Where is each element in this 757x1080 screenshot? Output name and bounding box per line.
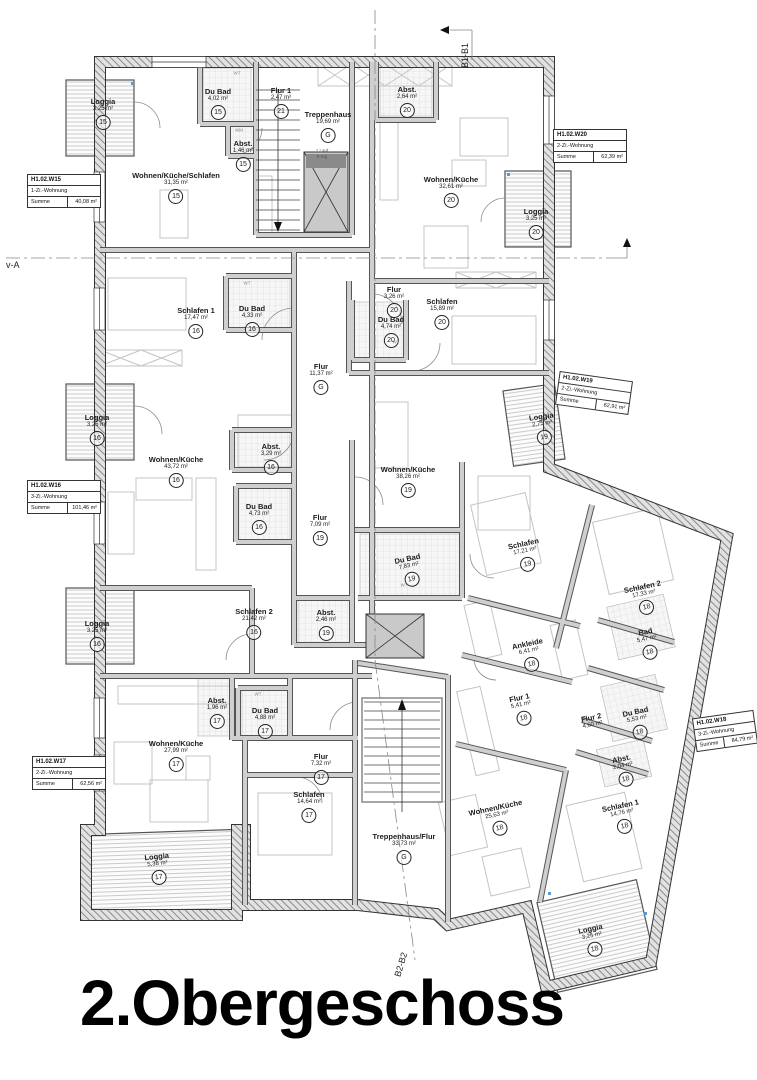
- apartment-info-box-w15: H1.02.W151-Zi.-Wohnung Summe40,08 m²: [27, 174, 101, 208]
- room-label: Wohnen/Küche38,26 m²19: [381, 466, 435, 498]
- floor-plan-drawing: [0, 0, 757, 1080]
- unit-circle: 18: [617, 771, 635, 789]
- fixture-label-wt: WT: [244, 281, 251, 286]
- unit-circle: 19: [519, 556, 537, 574]
- unit-circle: 16: [90, 431, 105, 446]
- room-label: Abst.2,64 m²20: [397, 86, 417, 118]
- unit-circle: G: [313, 380, 328, 395]
- room-label: Loggia3,25 m²16: [85, 414, 110, 446]
- room-label: Du Bad4,74 m²20: [378, 316, 404, 348]
- staircase-bottom: [362, 698, 442, 812]
- unit-circle: 18: [586, 941, 604, 959]
- unit-circle: 21: [273, 104, 288, 119]
- room-label: Abst.1,46 m²15: [233, 140, 253, 172]
- room-label: Schlafen15,89 m²20: [426, 298, 457, 330]
- unit-circle: 16: [264, 460, 279, 475]
- elevator-top: [304, 152, 348, 232]
- unit-circle: 20: [529, 225, 544, 240]
- room-label: Flur7,32 m²17: [311, 753, 331, 785]
- unit-circle: 16: [246, 625, 261, 640]
- unit-circle: 16: [188, 324, 203, 339]
- room-label: Wohnen/Küche43,72 m²16: [149, 456, 203, 488]
- room-label: Loggia3,25 m²15: [91, 98, 116, 130]
- unit-circle: 17: [168, 757, 183, 772]
- room-label: Du Bad4,33 m²16: [239, 305, 265, 337]
- room-label: Wohnen/Küche27,99 m²17: [149, 740, 203, 772]
- unit-circle: 18: [491, 820, 509, 838]
- fixture-label-wt: WT: [401, 583, 408, 588]
- room-label: Schlafen 221,42 m²16: [235, 608, 273, 640]
- unit-circle: G: [321, 128, 336, 143]
- unit-circle: 18: [616, 818, 634, 836]
- room-label: Abst.1,96 m²17: [207, 697, 227, 729]
- unit-circle: 18: [641, 644, 659, 662]
- floor-plan-page: Loggia3,25 m²15 Du Bad4,02 m²15 Abst.1,4…: [0, 0, 757, 1080]
- unit-circle: 17: [258, 724, 273, 739]
- section-arrow-a: [623, 238, 631, 247]
- section-label-a: v-A: [6, 260, 20, 270]
- room-label: Loggia3,25 m²16: [85, 620, 110, 652]
- apartment-info-box-w17: H1.02.W172-Zi.-Wohnung Summe62,56 m²: [32, 756, 106, 790]
- apartment-info-box-w16: H1.02.W163-Zi.-Wohnung Summe101,46 m²: [27, 480, 101, 514]
- unit-circle: 17: [314, 770, 329, 785]
- unit-circle: 15: [168, 189, 183, 204]
- floor-title: 2.Obergeschoss: [80, 966, 564, 1040]
- room-label: Abst.3,29 m²16: [261, 443, 281, 475]
- unit-circle: 17: [151, 869, 167, 885]
- unit-circle: 19: [313, 531, 328, 546]
- unit-circle: 18: [523, 656, 541, 674]
- room-label: Loggia3,25 m²20: [524, 208, 549, 240]
- unit-circle: 18: [515, 710, 533, 728]
- room-label: Wohnen/Küche32,61 m²20: [424, 176, 478, 208]
- room-label: Wohnen/Küche/Schlafen31,35 m²15: [132, 172, 220, 204]
- unit-circle: 16: [245, 322, 260, 337]
- unit-circle: 15: [96, 115, 111, 130]
- room-label: Abst.2,46 m²19: [316, 609, 336, 641]
- fixture-label-wt: WT: [393, 340, 400, 345]
- unit-circle: 18: [631, 724, 649, 742]
- unit-circle: 20: [434, 315, 449, 330]
- room-label: Flur11,37 m²G: [309, 363, 332, 395]
- unit-circle: 17: [210, 714, 225, 729]
- room-label: Schlafen14,64 m²17: [293, 791, 324, 823]
- room-label: Schlafen17,21 m²19: [507, 537, 544, 575]
- room-label: Loggia2,75 m²19: [529, 411, 558, 446]
- unit-circle: 18: [638, 599, 656, 617]
- room-label: Du Bad4,88 m²17: [252, 707, 278, 739]
- unit-circle: 16: [252, 520, 267, 535]
- stair-note: 1.Lauf9 Stg: [300, 148, 344, 160]
- room-label: Flur7,09 m²19: [310, 514, 330, 546]
- unit-circle: 15: [211, 105, 226, 120]
- room-label: Du Bad4,02 m²15: [205, 88, 231, 120]
- room-label: Treppenhaus/Flur33,73 m²G: [373, 833, 436, 865]
- room-label: Loggia5,38 m²17: [144, 852, 172, 887]
- room-label: Schlafen 117,47 m²16: [177, 307, 215, 339]
- room-label: Ankleide6,41 m²18: [511, 637, 548, 675]
- unit-circle: 20: [400, 103, 415, 118]
- fixture-label-wt: WT: [255, 692, 262, 697]
- unit-circle: 19: [400, 483, 415, 498]
- unit-circle: 19: [319, 626, 334, 641]
- unit-circle: 16: [168, 473, 183, 488]
- section-label-b1: B1-B1: [460, 43, 470, 68]
- fixture-label-wm: WM: [235, 128, 243, 133]
- section-arrow-b1: [440, 26, 449, 34]
- apartment-info-box-w20: H1.02.W202-Zi.-Wohnung Summe62,39 m²: [553, 129, 627, 163]
- room-label: Flur 12,47 m²21: [271, 87, 291, 119]
- fixture-label-wt: WT: [234, 71, 241, 76]
- room-label: Treppenhaus19,69 m²G: [305, 111, 352, 143]
- unit-circle: 19: [536, 429, 553, 446]
- unit-circle: 17: [301, 808, 316, 823]
- unit-circle: 20: [443, 193, 458, 208]
- unit-circle: 16: [90, 637, 105, 652]
- unit-circle: G: [397, 850, 412, 865]
- unit-circle: 15: [236, 157, 251, 172]
- room-label: Flur3,26 m²20: [384, 286, 404, 318]
- room-label: Du Bad4,73 m²16: [246, 503, 272, 535]
